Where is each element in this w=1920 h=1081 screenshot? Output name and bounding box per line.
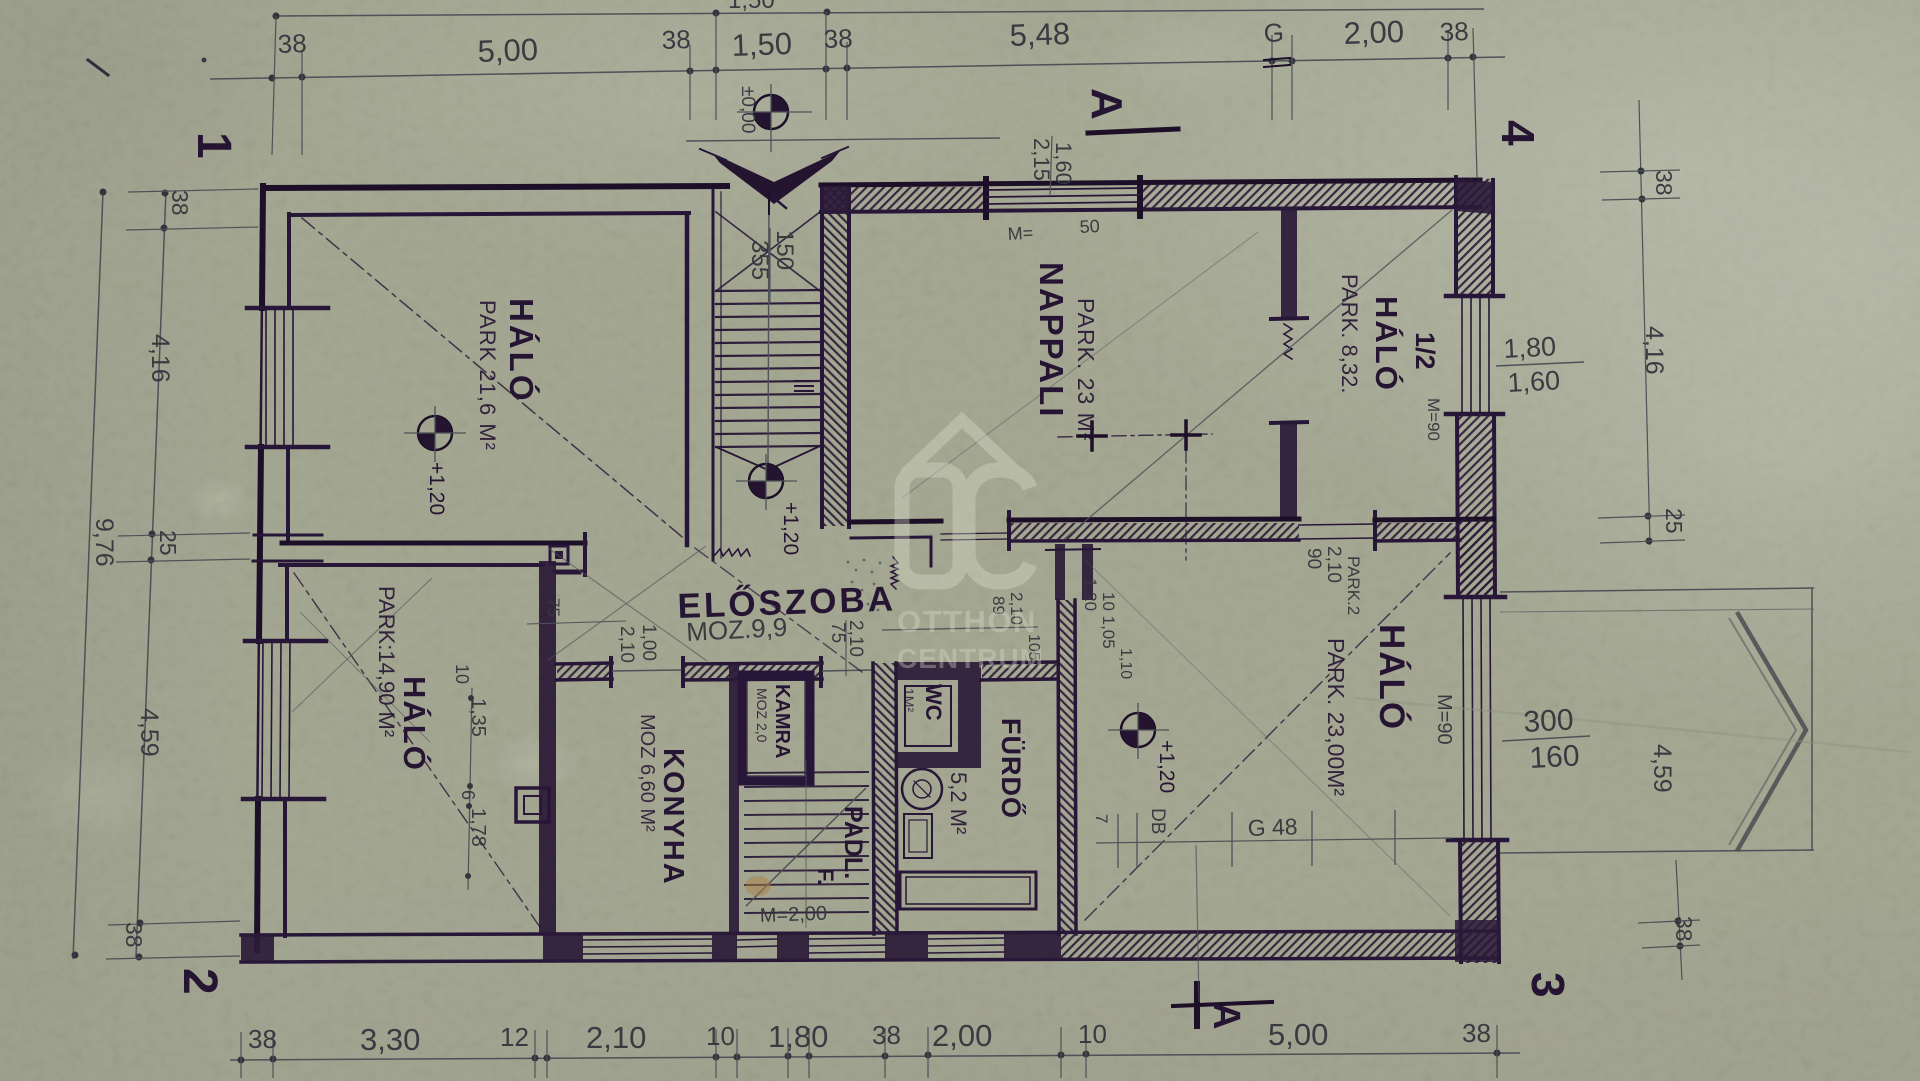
svg-text:NAPPALI: NAPPALI <box>1033 262 1070 418</box>
svg-text:A: A <box>1082 88 1131 120</box>
svg-text:KAMRA: KAMRA <box>771 684 793 758</box>
svg-text:3: 3 <box>1522 972 1574 998</box>
svg-text:2,00: 2,00 <box>1343 14 1405 51</box>
svg-text:1M²: 1M² <box>901 688 917 712</box>
svg-text:G 48: G 48 <box>1247 813 1298 841</box>
svg-text:1,00: 1,00 <box>638 624 659 661</box>
svg-text:HÁLÓ: HÁLÓ <box>503 298 540 404</box>
svg-text:75: 75 <box>544 598 563 617</box>
svg-text:38: 38 <box>1651 170 1677 196</box>
svg-text:38: 38 <box>872 1020 901 1050</box>
svg-text:38: 38 <box>1671 916 1697 942</box>
svg-text:1/2: 1/2 <box>1410 332 1440 370</box>
svg-text:2,10: 2,10 <box>845 620 866 657</box>
svg-text:2,10: 2,10 <box>616 626 637 663</box>
svg-text:9,76: 9,76 <box>90 518 118 567</box>
svg-text:A: A <box>1205 1002 1247 1029</box>
svg-text:10: 10 <box>452 664 472 684</box>
svg-text:PARK. 23 M²: PARK. 23 M² <box>1073 298 1099 442</box>
svg-text:10: 10 <box>1078 1019 1107 1049</box>
svg-text:WC: WC <box>921 684 946 721</box>
svg-text:1,78: 1,78 <box>467 808 489 847</box>
svg-text:150: 150 <box>771 230 798 270</box>
svg-text:12: 12 <box>500 1022 529 1052</box>
svg-text:1,10: 1,10 <box>1117 648 1134 679</box>
svg-text:HÁLÓ: HÁLÓ <box>1372 624 1412 731</box>
svg-text:38: 38 <box>167 190 193 216</box>
svg-text:HÁLÓ: HÁLÓ <box>397 676 433 772</box>
svg-text:7: 7 <box>1092 814 1111 823</box>
svg-text:2,00: 2,00 <box>932 1018 992 1053</box>
svg-text:M=90: M=90 <box>1424 398 1443 441</box>
svg-text:38: 38 <box>1439 16 1469 47</box>
svg-text:75: 75 <box>827 622 848 643</box>
svg-text:PARK.2: PARK.2 <box>1344 556 1363 615</box>
svg-text:10: 10 <box>706 1021 735 1051</box>
svg-text:38: 38 <box>823 23 853 54</box>
svg-text:PARK. 8,32.: PARK. 8,32. <box>1337 274 1362 393</box>
svg-text:6: 6 <box>458 790 478 800</box>
svg-text:38: 38 <box>248 1024 277 1054</box>
svg-text:M=: M= <box>1007 223 1034 244</box>
svg-text:1,50: 1,50 <box>728 0 775 14</box>
svg-text:5,00: 5,00 <box>1268 1017 1328 1052</box>
svg-text:38: 38 <box>277 28 307 59</box>
svg-text:PARK 21,6 M²: PARK 21,6 M² <box>475 300 500 451</box>
svg-text:38: 38 <box>661 24 691 55</box>
svg-text:+1,20: +1,20 <box>425 462 448 515</box>
svg-text:1,50: 1,50 <box>731 26 793 63</box>
svg-text:5,00: 5,00 <box>477 32 539 69</box>
svg-text:4,59: 4,59 <box>135 708 163 757</box>
svg-text:5,48: 5,48 <box>1009 16 1071 53</box>
svg-text:3,30: 3,30 <box>360 1022 420 1057</box>
svg-text:300: 300 <box>1523 703 1575 739</box>
svg-text:1,80: 1,80 <box>1503 331 1557 364</box>
svg-text:4: 4 <box>1492 120 1544 146</box>
svg-text:5,2 M²: 5,2 M² <box>946 772 971 834</box>
svg-text:F.: F. <box>813 868 838 885</box>
svg-text:160: 160 <box>1529 739 1581 775</box>
svg-text:MOZ 6,60 M²: MOZ 6,60 M² <box>636 714 658 832</box>
svg-text:CENTRUM: CENTRUM <box>897 643 1044 674</box>
svg-text:PADL.: PADL. <box>839 806 867 879</box>
svg-text:M=90: M=90 <box>1433 694 1455 745</box>
svg-text:38: 38 <box>121 922 147 948</box>
svg-text:50: 50 <box>1079 216 1100 237</box>
svg-text:PARK:14,90 M²: PARK:14,90 M² <box>374 586 399 737</box>
svg-text:M=2,00: M=2,00 <box>759 903 827 927</box>
svg-text:4,59: 4,59 <box>1648 744 1676 793</box>
svg-text:OTTHON: OTTHON <box>897 604 1037 639</box>
svg-text:1,60: 1,60 <box>1507 365 1561 398</box>
svg-text:4,16: 4,16 <box>146 334 174 383</box>
svg-text:1,60: 1,60 <box>1051 142 1076 185</box>
svg-text:2,10: 2,10 <box>586 1020 646 1055</box>
svg-text:KONYHA: KONYHA <box>657 748 689 886</box>
svg-text:25: 25 <box>1661 508 1687 534</box>
svg-text:1: 1 <box>187 132 240 159</box>
svg-text:1,35: 1,35 <box>467 698 489 737</box>
svg-text:DB: DB <box>1147 808 1168 834</box>
svg-text:2: 2 <box>173 968 226 995</box>
svg-text:MOZ 2,0: MOZ 2,0 <box>754 688 770 743</box>
svg-text:2,10: 2,10 <box>1323 546 1344 583</box>
svg-text:10 1,05: 10 1,05 <box>1099 592 1118 649</box>
svg-text:+1,20: +1,20 <box>1155 740 1178 793</box>
svg-text:MOZ.9,9: MOZ.9,9 <box>685 612 788 647</box>
svg-text:HÁLÓ: HÁLÓ <box>1369 296 1405 392</box>
svg-text:25: 25 <box>155 530 181 556</box>
svg-text:1,80: 1,80 <box>768 1019 828 1054</box>
svg-text:90: 90 <box>1303 548 1324 569</box>
svg-text:G: G <box>1263 17 1284 48</box>
svg-text:38: 38 <box>1462 1018 1491 1048</box>
svg-text:FÜRDŐ: FÜRDŐ <box>996 718 1027 819</box>
svg-text:±0,00: ±0,00 <box>737 86 758 133</box>
svg-text:+1,20: +1,20 <box>779 502 802 555</box>
svg-text:355: 355 <box>746 240 773 280</box>
svg-text:PARK. 23,00M²: PARK. 23,00M² <box>1323 638 1349 796</box>
svg-text:1,20: 1,20 <box>1081 578 1100 611</box>
svg-text:4,16: 4,16 <box>1640 326 1668 375</box>
